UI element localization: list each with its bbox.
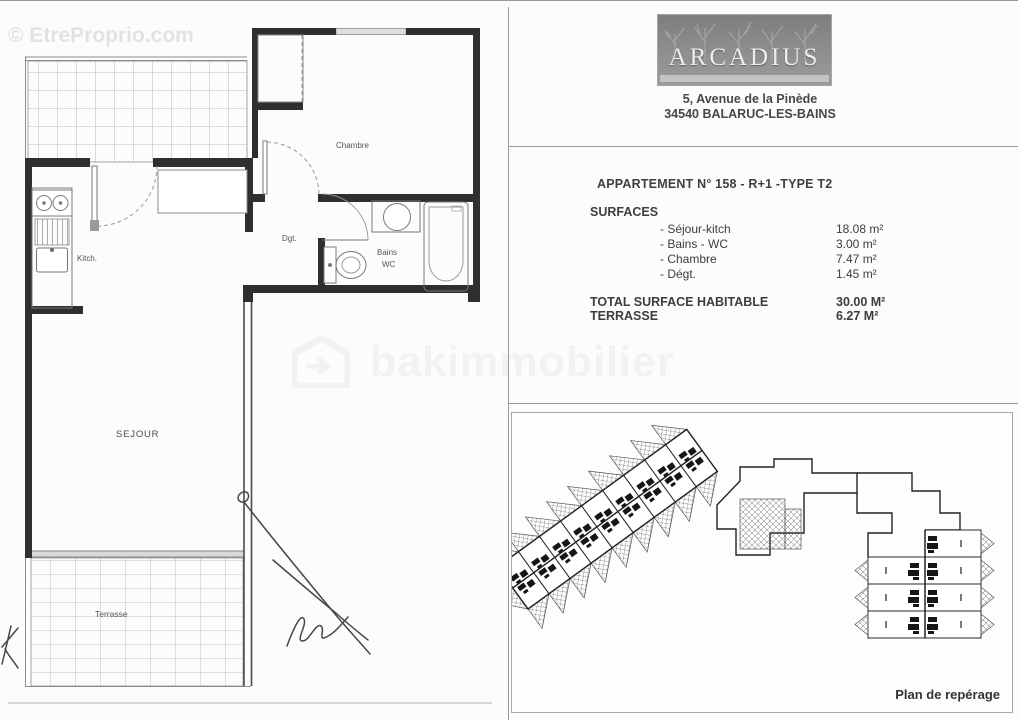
- agency-logo: ARCADIUS: [657, 14, 832, 86]
- logo-title: ARCADIUS: [657, 44, 832, 72]
- total-label: TOTAL SURFACE HABITABLE: [590, 295, 768, 309]
- site-plan: [512, 413, 1012, 712]
- dgt-label: Dgt.: [282, 234, 297, 243]
- chambre-window: [336, 29, 406, 35]
- address-line1: 5, Avenue de la Pinède: [600, 92, 900, 107]
- siteplan-box: [511, 412, 1013, 713]
- address-line2: 34540 BALARUC-LES-BAINS: [600, 107, 900, 122]
- surface-value: 3.00 m²: [836, 237, 877, 251]
- surface-row: - Séjour-kitch 18.08 m²: [660, 222, 990, 236]
- bathroom: [324, 201, 468, 291]
- siteplan-corridor: [717, 459, 960, 557]
- siteplan-diagonal-wing: [512, 413, 731, 643]
- bains-label: Bains: [377, 248, 397, 257]
- chambre-label: Chambre: [336, 141, 369, 150]
- floor-plan: © EtreProprio.com: [0, 0, 508, 720]
- plan-caption: Plan de repérage: [850, 687, 1000, 702]
- terrace-row: TERRASSE 6.27 M²: [590, 309, 990, 323]
- surface-row: - Chambre 7.47 m²: [660, 252, 990, 266]
- terrasse-label: Terrasse: [95, 609, 128, 619]
- surface-label: - Dégt.: [660, 267, 696, 281]
- surface-row: - Dégt. 1.45 m²: [660, 267, 990, 281]
- terrace-value: 6.27 M²: [836, 309, 878, 323]
- terrace-bottom-tiles: [25, 554, 251, 687]
- hob: [32, 190, 72, 216]
- scanned-floorplan-sheet: bakimmobilier © EtreProprio.com: [0, 0, 1018, 720]
- sejour-window: [31, 551, 244, 557]
- surface-row: - Bains - WC 3.00 m²: [660, 237, 990, 251]
- chambre-closet: [258, 35, 303, 102]
- apartment-title: APPARTEMENT N° 158 - R+1 -TYPE T2: [597, 177, 832, 191]
- agency-address: 5, Avenue de la Pinède 34540 BALARUC-LES…: [600, 92, 900, 122]
- kitchen-unit: [32, 188, 72, 308]
- total-value: 30.00 M²: [836, 295, 885, 309]
- surface-value: 18.08 m²: [836, 222, 883, 236]
- entry-closet: [158, 170, 247, 213]
- wc-label: WC: [382, 260, 396, 269]
- bathtub: [424, 202, 468, 291]
- surface-label: - Bains - WC: [660, 237, 728, 251]
- surface-value: 7.47 m²: [836, 252, 877, 266]
- surface-label: - Chambre: [660, 252, 717, 266]
- surface-label: - Séjour-kitch: [660, 222, 731, 236]
- siteplan-divider: [508, 403, 1018, 404]
- kitchen-sink: [37, 248, 68, 272]
- total-row: TOTAL SURFACE HABITABLE 30.00 M²: [590, 295, 990, 309]
- chambre-door: [263, 141, 319, 195]
- siteplan-right-block: [855, 530, 994, 638]
- sejour-label: SEJOUR: [116, 429, 159, 440]
- surface-value: 1.45 m²: [836, 267, 877, 281]
- vertical-divider: [508, 7, 509, 720]
- logo-band: [660, 75, 829, 82]
- entrance-door: [90, 166, 157, 231]
- drainer: [35, 219, 69, 245]
- watermark-etreproprio: © EtreProprio.com: [8, 24, 194, 47]
- header-divider: [508, 146, 1018, 147]
- top-border: [0, 0, 1018, 1]
- terrace-label: TERRASSE: [590, 309, 658, 323]
- washbasin: [372, 201, 420, 232]
- surfaces-heading: SURFACES: [590, 205, 658, 219]
- kitch-label: Kitch.: [77, 254, 97, 263]
- toilet: [324, 247, 366, 283]
- terrace-top-tiles: [25, 57, 247, 162]
